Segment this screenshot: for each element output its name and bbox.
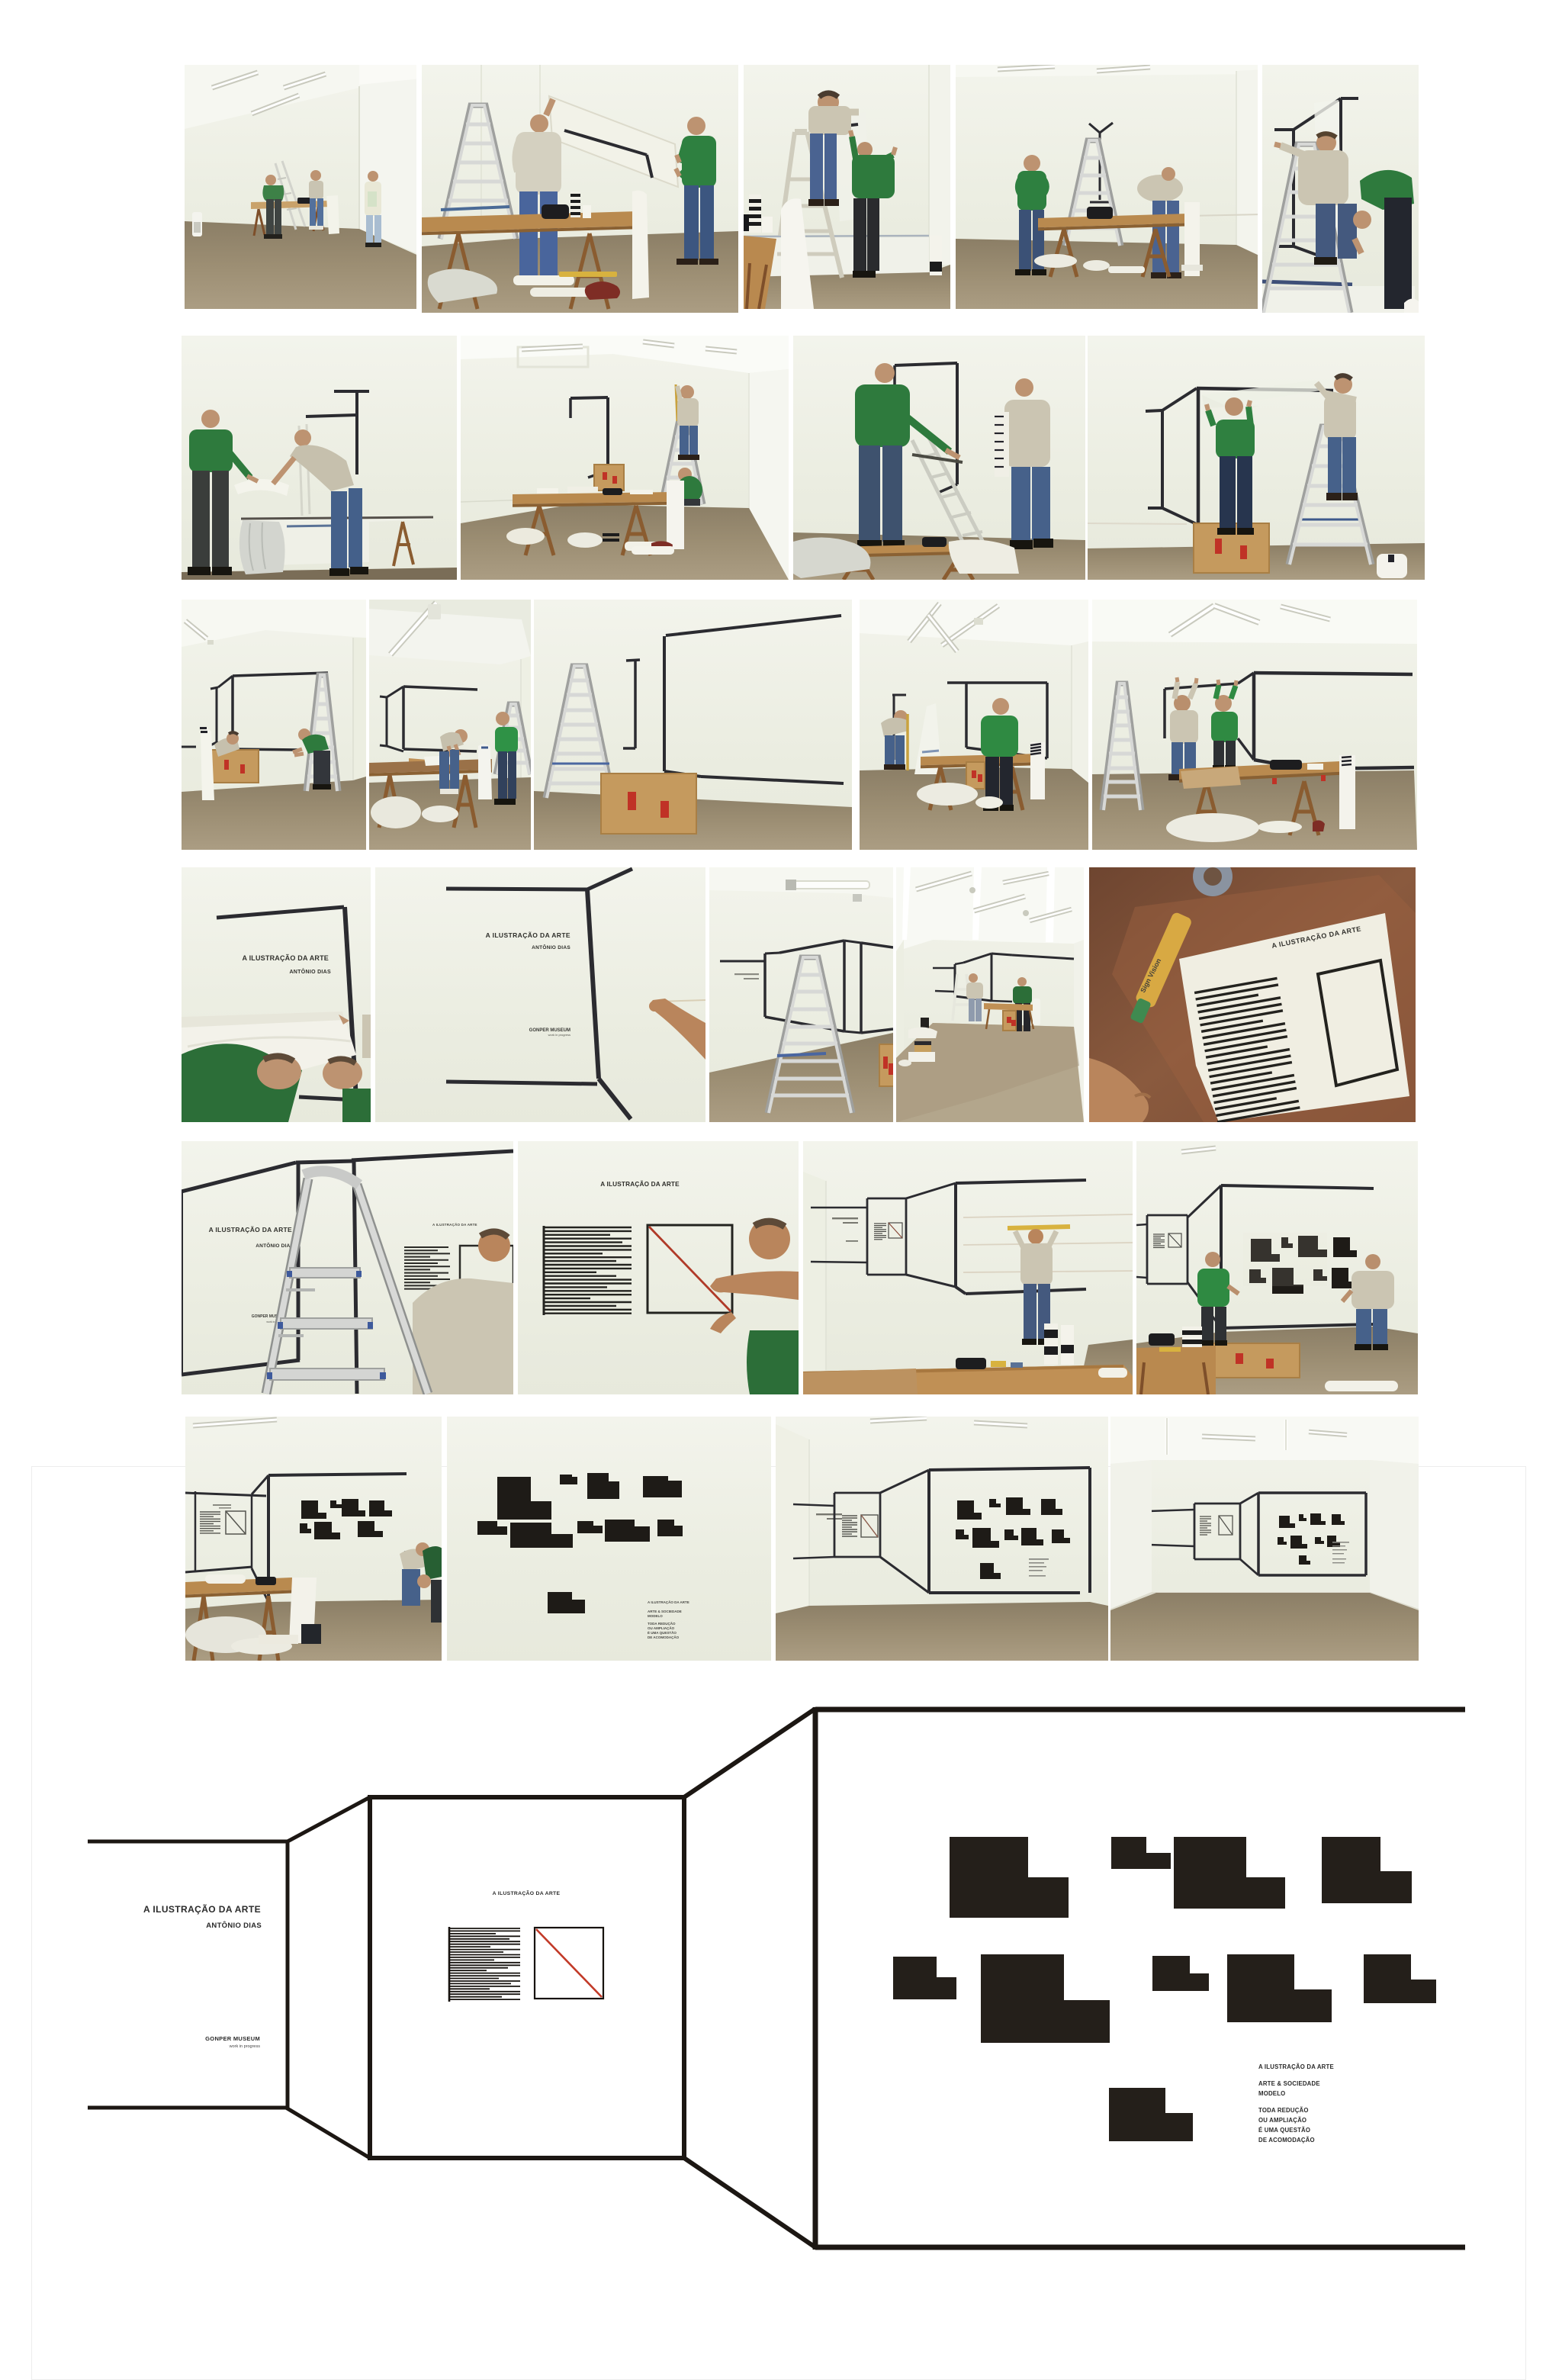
svg-text:TODA REDUÇÃO: TODA REDUÇÃO [1258,2107,1309,2114]
svg-text:A ILUSTRAÇÃO DA ARTE: A ILUSTRAÇÃO DA ARTE [1258,2063,1334,2070]
svg-text:ANTÔNIO DIAS: ANTÔNIO DIAS [206,1921,262,1930]
svg-text:É UMA QUESTÃO: É UMA QUESTÃO [1258,2127,1310,2134]
svg-text:A ILUSTRAÇÃO DA ARTE: A ILUSTRAÇÃO DA ARTE [493,1890,561,1896]
svg-text:GONPER MUSEUM: GONPER MUSEUM [205,2035,260,2042]
svg-text:A ILUSTRAÇÃO DA ARTE: A ILUSTRAÇÃO DA ARTE [143,1903,261,1915]
svg-text:OU AMPLIAÇÃO: OU AMPLIAÇÃO [1258,2117,1306,2124]
svg-text:MODELO: MODELO [1258,2090,1285,2097]
svg-text:ARTE & SOCIEDADE: ARTE & SOCIEDADE [1258,2080,1320,2087]
svg-text:DE ACOMODAÇÃO: DE ACOMODAÇÃO [1258,2137,1315,2144]
svg-text:work in progress: work in progress [229,2044,261,2049]
